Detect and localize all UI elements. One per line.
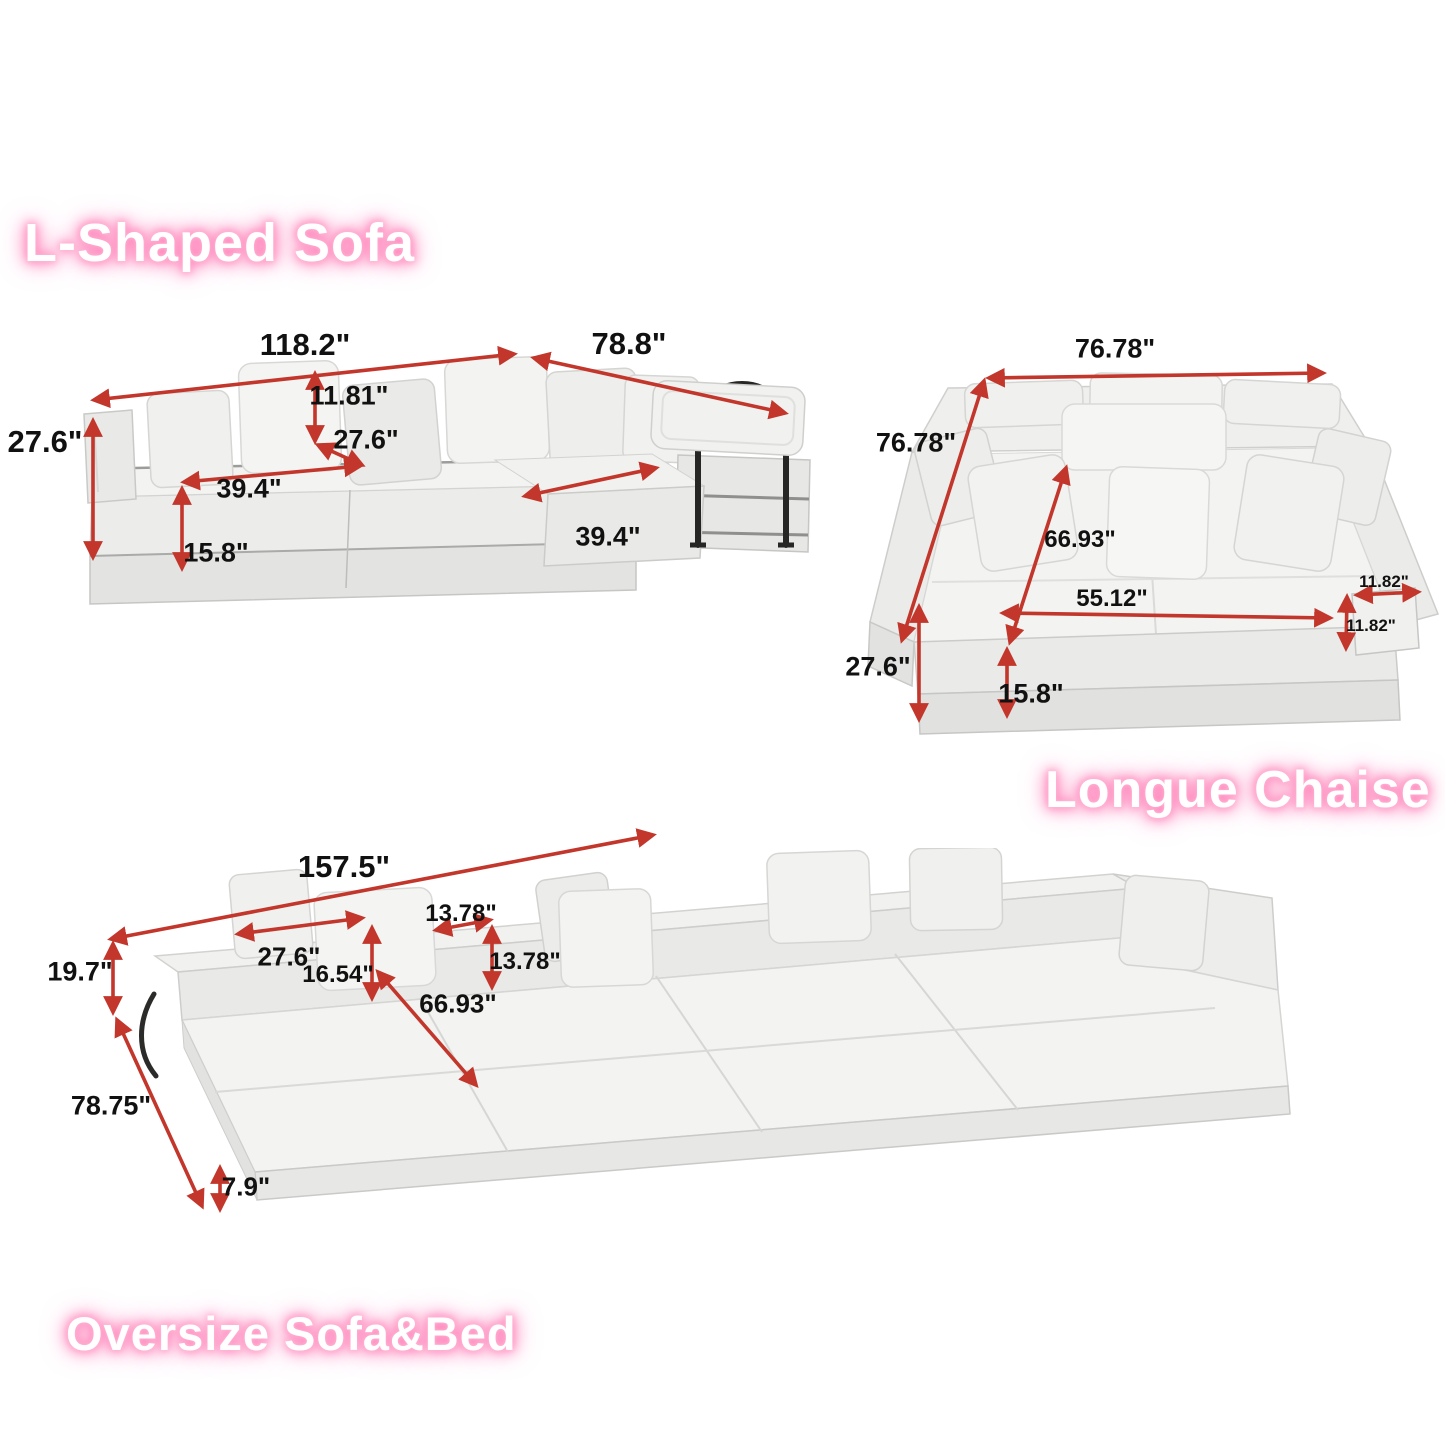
dim-label-c-base-height: 15.8" [998,679,1063,710]
dim-label-o-bed-diagonal: 66.93" [419,989,496,1020]
dim-label-c-armrest-width: 11.82" [1359,572,1409,592]
longue-chaise-drawing [862,342,1445,750]
dim-label-o-total-length: 157.5" [298,849,390,885]
dim-label-l-chaise-length: 78.8" [591,326,666,362]
oversize-sofa-bed-image [120,848,1295,1218]
dim-label-l-chaise-seat-width: 39.4" [575,522,640,553]
longue-chaise-title: Longue Chaise [1045,760,1431,820]
dim-label-o-total-depth: 78.75" [71,1091,151,1122]
dim-label-o-mattress-height: 7.9" [222,1172,270,1203]
side-handle [142,994,157,1076]
longue-chaise-image [862,342,1445,750]
dim-label-c-overall-height: 27.6" [845,652,910,683]
product-dimension-sheet: L-Shaped Sofa Longue Chaise Oversize Sof… [0,0,1445,1445]
dim-label-l-seat-depth: 27.6" [333,425,398,456]
l-shaped-sofa-drawing [40,332,820,632]
chaise-pillows [913,373,1393,580]
dim-label-o-backrest-height: 16.54" [302,961,373,989]
l-shaped-sofa-image [40,332,820,632]
dim-label-l-pillow-height: 11.81" [310,381,389,412]
dim-label-o-small-pillow-width: 13.78" [425,900,496,928]
dim-label-l-overall-height: 27.6" [7,424,82,460]
dim-label-c-armrest-height: 11.82" [1346,616,1396,636]
dim-label-c-total-depth: 76.78" [876,428,956,459]
l-shaped-sofa-title: L-Shaped Sofa [24,212,415,274]
dim-label-l-seat-width: 39.4" [216,474,281,505]
oversize-structure [142,874,1291,1200]
dim-label-c-total-width: 76.78" [1075,334,1155,365]
dim-label-o-back-height: 19.7" [47,957,112,988]
dim-label-l-base-height: 15.8" [183,538,248,569]
oversize-sofa-bed-drawing [120,848,1295,1218]
dim-label-l-total-width: 118.2" [260,327,351,363]
left-arm-cushion [84,410,136,503]
dim-label-o-small-pillow-height: 13.78" [489,948,560,976]
oversize-sofa-bed-title: Oversize Sofa&Bed [66,1306,517,1361]
dim-label-c-seat-diagonal: 66.93" [1044,526,1115,554]
dim-label-c-inner-width: 55.12" [1076,585,1147,613]
